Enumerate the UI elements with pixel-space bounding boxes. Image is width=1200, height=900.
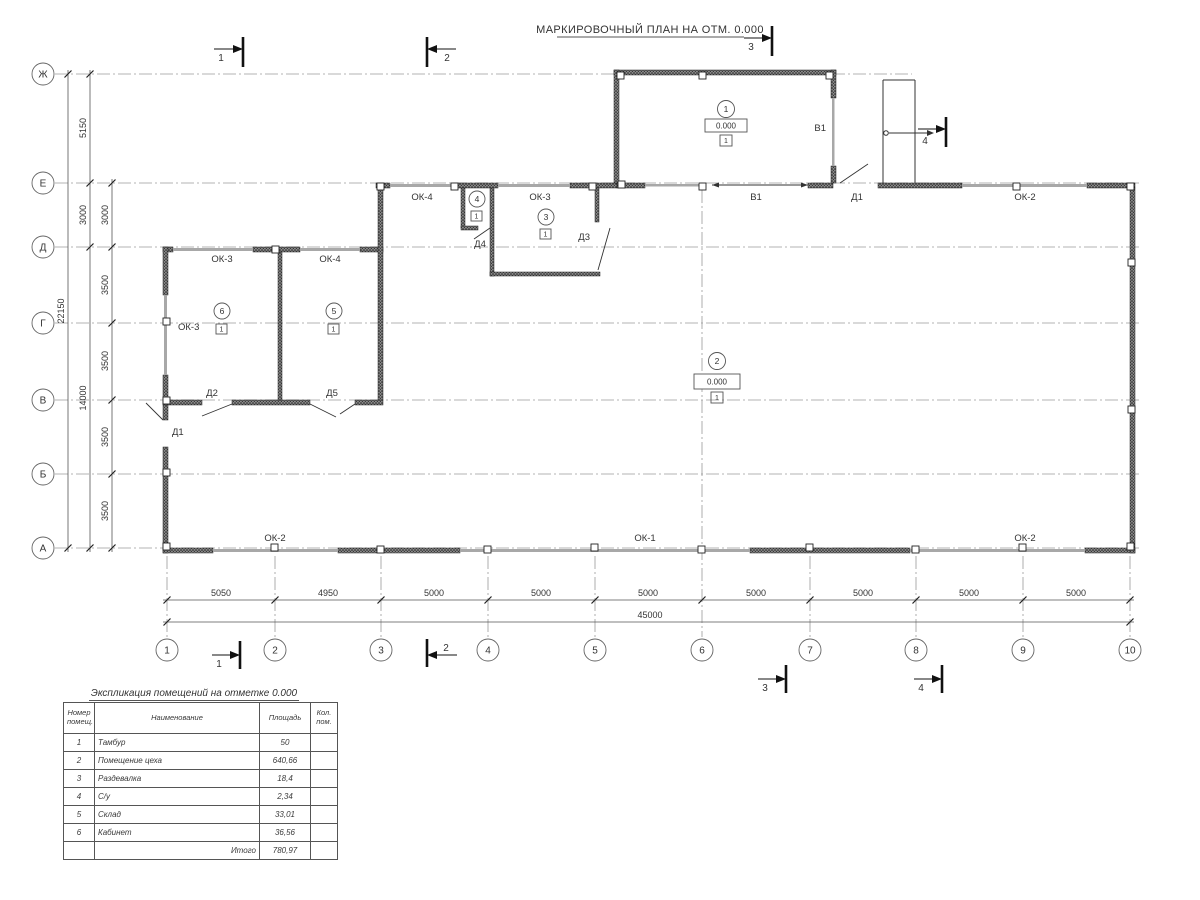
- cell-count: [311, 806, 338, 824]
- cell-name: Склад: [95, 806, 260, 824]
- cell-count: [311, 842, 338, 860]
- door-label-d3: Д3: [578, 232, 590, 243]
- cell-num: [64, 842, 95, 860]
- cell-area: 36,56: [260, 824, 311, 842]
- wall-segment: [163, 447, 168, 553]
- dim-value: 5150: [78, 118, 88, 138]
- section-marker-4-bottom: 4: [914, 665, 942, 694]
- cell-count: [311, 770, 338, 788]
- dim-value: 5000: [959, 588, 979, 598]
- window-ok3: [173, 248, 253, 251]
- window-ok1: [460, 549, 750, 552]
- drawing-sheet: { "plan": { "title": "МАРКИРОВОЧНЫЙ ПЛАН…: [0, 0, 1200, 900]
- table-row: 5 Склад 33,01: [64, 806, 338, 824]
- schedule-header-num: Номер помещ.: [64, 703, 95, 734]
- door-label-d5: Д5: [326, 388, 338, 399]
- dim-value: 3500: [100, 427, 110, 447]
- cell-count: [311, 788, 338, 806]
- door-label-d1: Д1: [851, 192, 863, 203]
- gate-label-v1-wall: В1: [814, 123, 826, 134]
- plan-title: МАРКИРОВОЧНЫЙ ПЛАН НА ОТМ. 0.000: [536, 23, 764, 37]
- cell-count: [311, 752, 338, 770]
- cell-area: 2,34: [260, 788, 311, 806]
- cell-name: Тамбур: [95, 734, 260, 752]
- door-label-d2: Д2: [206, 388, 218, 399]
- section-number: 4: [918, 683, 924, 694]
- window-ok3: [164, 295, 167, 375]
- window-label-ok4: ОК-4: [319, 254, 340, 265]
- total-label: Итого: [95, 842, 260, 860]
- wall-segment: [355, 400, 383, 405]
- table-row: 2 Помещение цеха 640,66: [64, 752, 338, 770]
- axis-label: 5: [592, 646, 598, 657]
- axis-bubbles-left: [32, 63, 54, 559]
- schedule-title: Экспликация помещений на отметке 0.000: [63, 688, 325, 699]
- room-marker-4: 4 1: [469, 191, 485, 221]
- axis-label: 1: [164, 646, 170, 657]
- wall-segment: [614, 70, 836, 75]
- dim-value: 5000: [746, 588, 766, 598]
- room-marker-5: 5 1: [326, 303, 342, 334]
- dim-value: 5000: [531, 588, 551, 598]
- gate-v1-leaf: [832, 98, 835, 166]
- wall-segment: [1130, 188, 1135, 553]
- section-marker-3-bottom: 3: [758, 665, 786, 694]
- room-floor-type: 1: [332, 327, 336, 334]
- axis-label: Б: [40, 470, 47, 481]
- wall-segment: [232, 400, 310, 405]
- wall-segment: [808, 183, 833, 188]
- dimensions-bottom: 5050 4950 5000 5000 5000 5000 5000 5000 …: [163, 588, 1134, 626]
- gate-label-v1: В1: [750, 192, 762, 203]
- dim-value: 3500: [100, 351, 110, 371]
- section-marker-4-plan: 4: [918, 117, 946, 147]
- wall-segment: [163, 548, 213, 553]
- dim-value: 5000: [1066, 588, 1086, 598]
- section-number: 1: [216, 659, 222, 670]
- section-number: 3: [762, 683, 768, 694]
- cell-num: 5: [64, 806, 95, 824]
- cell-count: [311, 824, 338, 842]
- slope-arrow-origin: [884, 131, 889, 136]
- axis-label: 10: [1124, 646, 1136, 657]
- axis-label: 2: [272, 646, 278, 657]
- section-marker-2-top: 2: [427, 37, 456, 67]
- table-row: 3 Раздевалка 18,4: [64, 770, 338, 788]
- column-markers: [163, 72, 1135, 553]
- window-label-ok4: ОК-4: [411, 192, 432, 203]
- table-total-row: Итого 780,97: [64, 842, 338, 860]
- dim-value: 3000: [100, 205, 110, 225]
- cell-name: Кабинет: [95, 824, 260, 842]
- wall-segment: [278, 252, 282, 400]
- dim-value: 3500: [100, 275, 110, 295]
- axis-label: Г: [40, 319, 46, 330]
- section-marker-1-top: 1: [214, 37, 243, 67]
- cell-count: [311, 734, 338, 752]
- dim-value: 3000: [78, 205, 88, 225]
- room-marker-3: 3 1: [538, 209, 554, 239]
- dim-value: 5000: [424, 588, 444, 598]
- room-marker-6: 6 1: [214, 303, 230, 334]
- cell-num: 1: [64, 734, 95, 752]
- table-row: 4 С/у 2,34: [64, 788, 338, 806]
- wall-segment: [750, 548, 910, 553]
- dim-value: 4950: [318, 588, 338, 598]
- wall-segment: [831, 166, 836, 183]
- cell-num: 6: [64, 824, 95, 842]
- wall-segment: [453, 183, 498, 188]
- cell-name: Раздевалка: [95, 770, 260, 788]
- room-floor-type: 1: [220, 327, 224, 334]
- window-ok4: [390, 184, 453, 187]
- room-marker-2: 2 0.000 1: [694, 353, 740, 404]
- window-label-ok2: ОК-2: [264, 533, 285, 544]
- plan-title-text: МАРКИРОВОЧНЫЙ ПЛАН НА ОТМ. 0.000: [536, 23, 764, 36]
- total-value: 780,97: [260, 842, 311, 860]
- room-number: 4: [475, 194, 480, 204]
- schedule-table: Номер помещ. Наименование Площадь Кол. п…: [63, 702, 338, 860]
- section-marker-1-bottom: 1: [212, 641, 240, 670]
- cell-num: 4: [64, 788, 95, 806]
- door-leaf-d1-right: [840, 164, 868, 183]
- slope-arrow-head: [927, 130, 934, 136]
- door-leaf-d5: [310, 404, 336, 417]
- window-ok3: [498, 184, 570, 187]
- wall-segment: [595, 188, 599, 222]
- cell-area: 50: [260, 734, 311, 752]
- room-number: 5: [332, 306, 337, 316]
- axis-bubble-labels-bottom: 1 2 3 4 5 6 7 8 9 10: [164, 646, 1136, 657]
- wall-segment: [461, 188, 465, 228]
- window-label-ok2: ОК-2: [1014, 533, 1035, 544]
- wall-segment: [490, 188, 494, 276]
- dim-value: 22150: [56, 298, 66, 323]
- section-number: 4: [922, 136, 928, 147]
- cell-num: 2: [64, 752, 95, 770]
- window-segment: [645, 184, 703, 187]
- axis-label: 8: [913, 646, 919, 657]
- door-label-d1-left: Д1: [172, 427, 184, 438]
- axis-label: В: [40, 396, 47, 407]
- window-ok4: [300, 248, 360, 251]
- wall-segment: [163, 247, 168, 295]
- room-number: 1: [724, 104, 729, 114]
- dimensions-left: 22150 5150 3000 14000 3000 3500 3500 350…: [56, 70, 116, 552]
- table-row: 1 Тамбур 50: [64, 734, 338, 752]
- wall-segment: [878, 183, 962, 188]
- window-label-ok2: ОК-2: [1014, 192, 1035, 203]
- window-label-ok3: ОК-3: [529, 192, 550, 203]
- schedule-header-area: Площадь: [260, 703, 311, 734]
- walls: [163, 70, 1135, 553]
- dim-value: 5000: [853, 588, 873, 598]
- cell-area: 18,4: [260, 770, 311, 788]
- door-leaf-d2: [202, 404, 232, 416]
- axis-label: 3: [378, 646, 384, 657]
- windows: [164, 98, 1087, 552]
- wall-segment: [490, 272, 600, 276]
- axis-label: 4: [485, 646, 491, 657]
- section-number: 2: [444, 53, 450, 64]
- cell-num: 3: [64, 770, 95, 788]
- axis-label: Ж: [38, 70, 48, 81]
- room-number: 3: [544, 212, 549, 222]
- axis-label: 6: [699, 646, 705, 657]
- door-label-d4: Д4: [474, 239, 486, 250]
- section-number: 3: [748, 42, 754, 53]
- axis-label: А: [40, 544, 47, 555]
- room-elevation: 0.000: [716, 122, 737, 131]
- room-schedule: Экспликация помещений на отметке 0.000 Н…: [63, 688, 325, 860]
- section-number: 2: [443, 643, 449, 654]
- table-row: 6 Кабинет 36,56: [64, 824, 338, 842]
- schedule-header-row: Номер помещ. Наименование Площадь Кол. п…: [64, 703, 338, 734]
- dim-value: 45000: [637, 610, 662, 620]
- axis-label: Е: [40, 179, 47, 190]
- dim-value: 14000: [78, 385, 88, 410]
- wall-segment: [461, 226, 478, 230]
- section-marker-2-bottom: 2: [427, 639, 457, 667]
- canopy: [883, 80, 934, 183]
- wall-segment: [614, 70, 619, 183]
- room-floor-type: 1: [475, 214, 479, 221]
- dim-value: 5050: [211, 588, 231, 598]
- axis-label: 9: [1020, 646, 1026, 657]
- dim-value: 3500: [100, 501, 110, 521]
- door-leaf-d1-left: [146, 403, 163, 420]
- section-number: 1: [218, 53, 224, 64]
- wall-segment: [338, 548, 460, 553]
- cell-area: 640,66: [260, 752, 311, 770]
- cell-name: С/у: [95, 788, 260, 806]
- room-floor-type: 1: [715, 395, 719, 402]
- room-floor-type: 1: [544, 232, 548, 239]
- room-number: 2: [715, 356, 720, 366]
- axis-label: Д: [40, 243, 47, 254]
- door-leaf-d5: [340, 404, 355, 414]
- window-label-ok3: ОК-3: [211, 254, 232, 265]
- schedule-header-name: Наименование: [95, 703, 260, 734]
- door-leaf-d3: [598, 228, 610, 270]
- cell-area: 33,01: [260, 806, 311, 824]
- cell-name: Помещение цеха: [95, 752, 260, 770]
- room-marker-1: 1 0.000 1: [705, 101, 747, 147]
- window-ok2: [962, 184, 1087, 187]
- room-floor-type: 1: [724, 138, 728, 145]
- room-elevation: 0.000: [707, 378, 728, 387]
- window-label-ok1: ОК-1: [634, 533, 655, 544]
- axis-grid: [55, 74, 1140, 637]
- axis-bubbles-bottom: [156, 639, 1141, 661]
- wall-segment: [378, 188, 383, 400]
- window-label-ok3-left: ОК-3: [178, 322, 199, 333]
- schedule-header-count: Кол. пом.: [311, 703, 338, 734]
- axis-label: 7: [807, 646, 813, 657]
- dim-value: 5000: [638, 588, 658, 598]
- window-ok2: [910, 549, 1085, 552]
- room-number: 6: [220, 306, 225, 316]
